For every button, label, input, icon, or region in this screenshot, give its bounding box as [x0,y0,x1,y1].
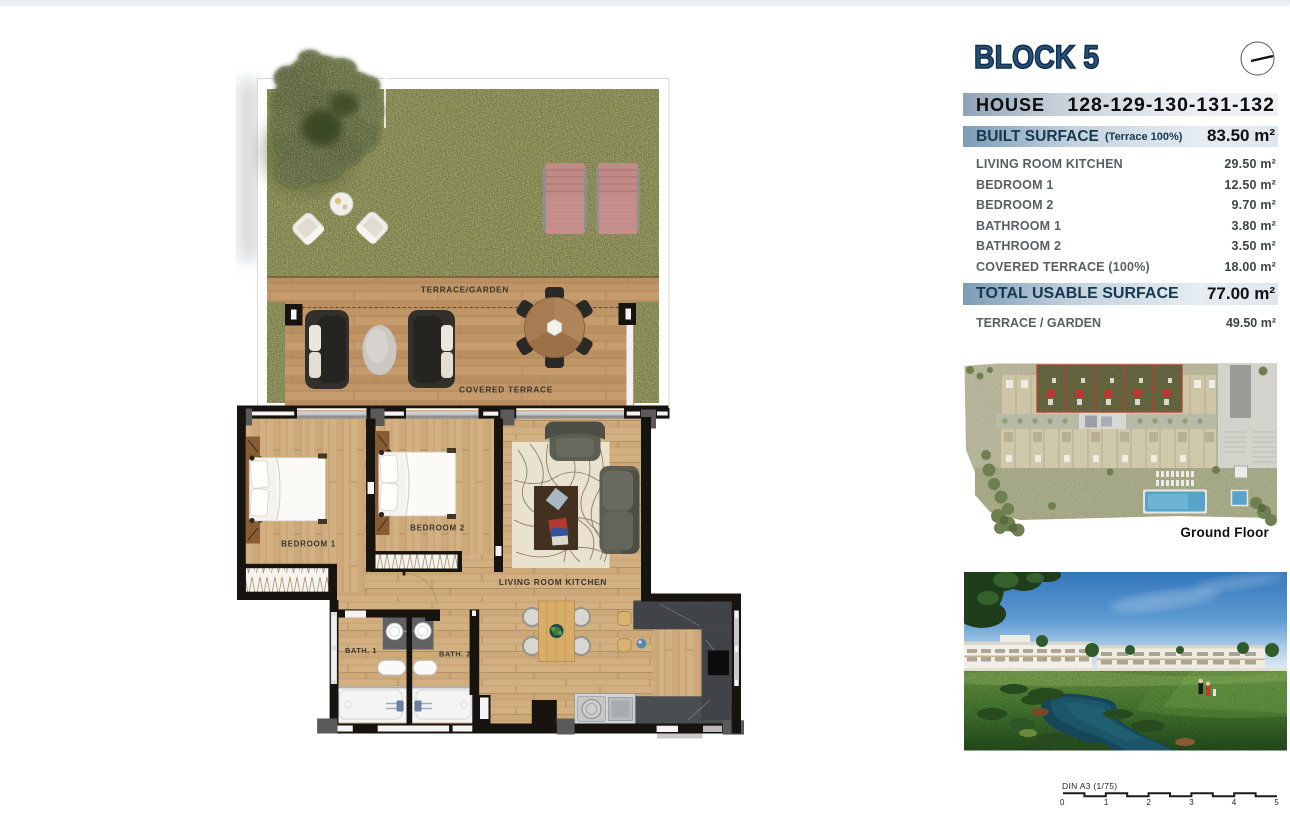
svg-text:3: 3 [1189,798,1194,807]
svg-text:Ground Floor: Ground Floor [1180,525,1269,540]
svg-text:0: 0 [1060,798,1065,807]
svg-text:BEDROOM 1: BEDROOM 1 [281,540,336,549]
svg-text:4: 4 [1232,798,1237,807]
svg-text:TERRACE/GARDEN: TERRACE/GARDEN [421,285,509,295]
svg-text:BEDROOM 2: BEDROOM 2 [410,524,465,533]
svg-text:5: 5 [1274,798,1279,807]
svg-text:DIN A3 (1/75): DIN A3 (1/75) [1062,781,1117,791]
svg-text:COVERED TERRACE: COVERED TERRACE [459,385,553,395]
svg-text:BATH. 1: BATH. 1 [345,646,377,655]
svg-text:2: 2 [1147,798,1152,807]
svg-text:1: 1 [1104,798,1109,807]
svg-text:BATH. 2: BATH. 2 [439,650,471,659]
svg-text:LIVING ROOM KITCHEN: LIVING ROOM KITCHEN [499,577,607,587]
